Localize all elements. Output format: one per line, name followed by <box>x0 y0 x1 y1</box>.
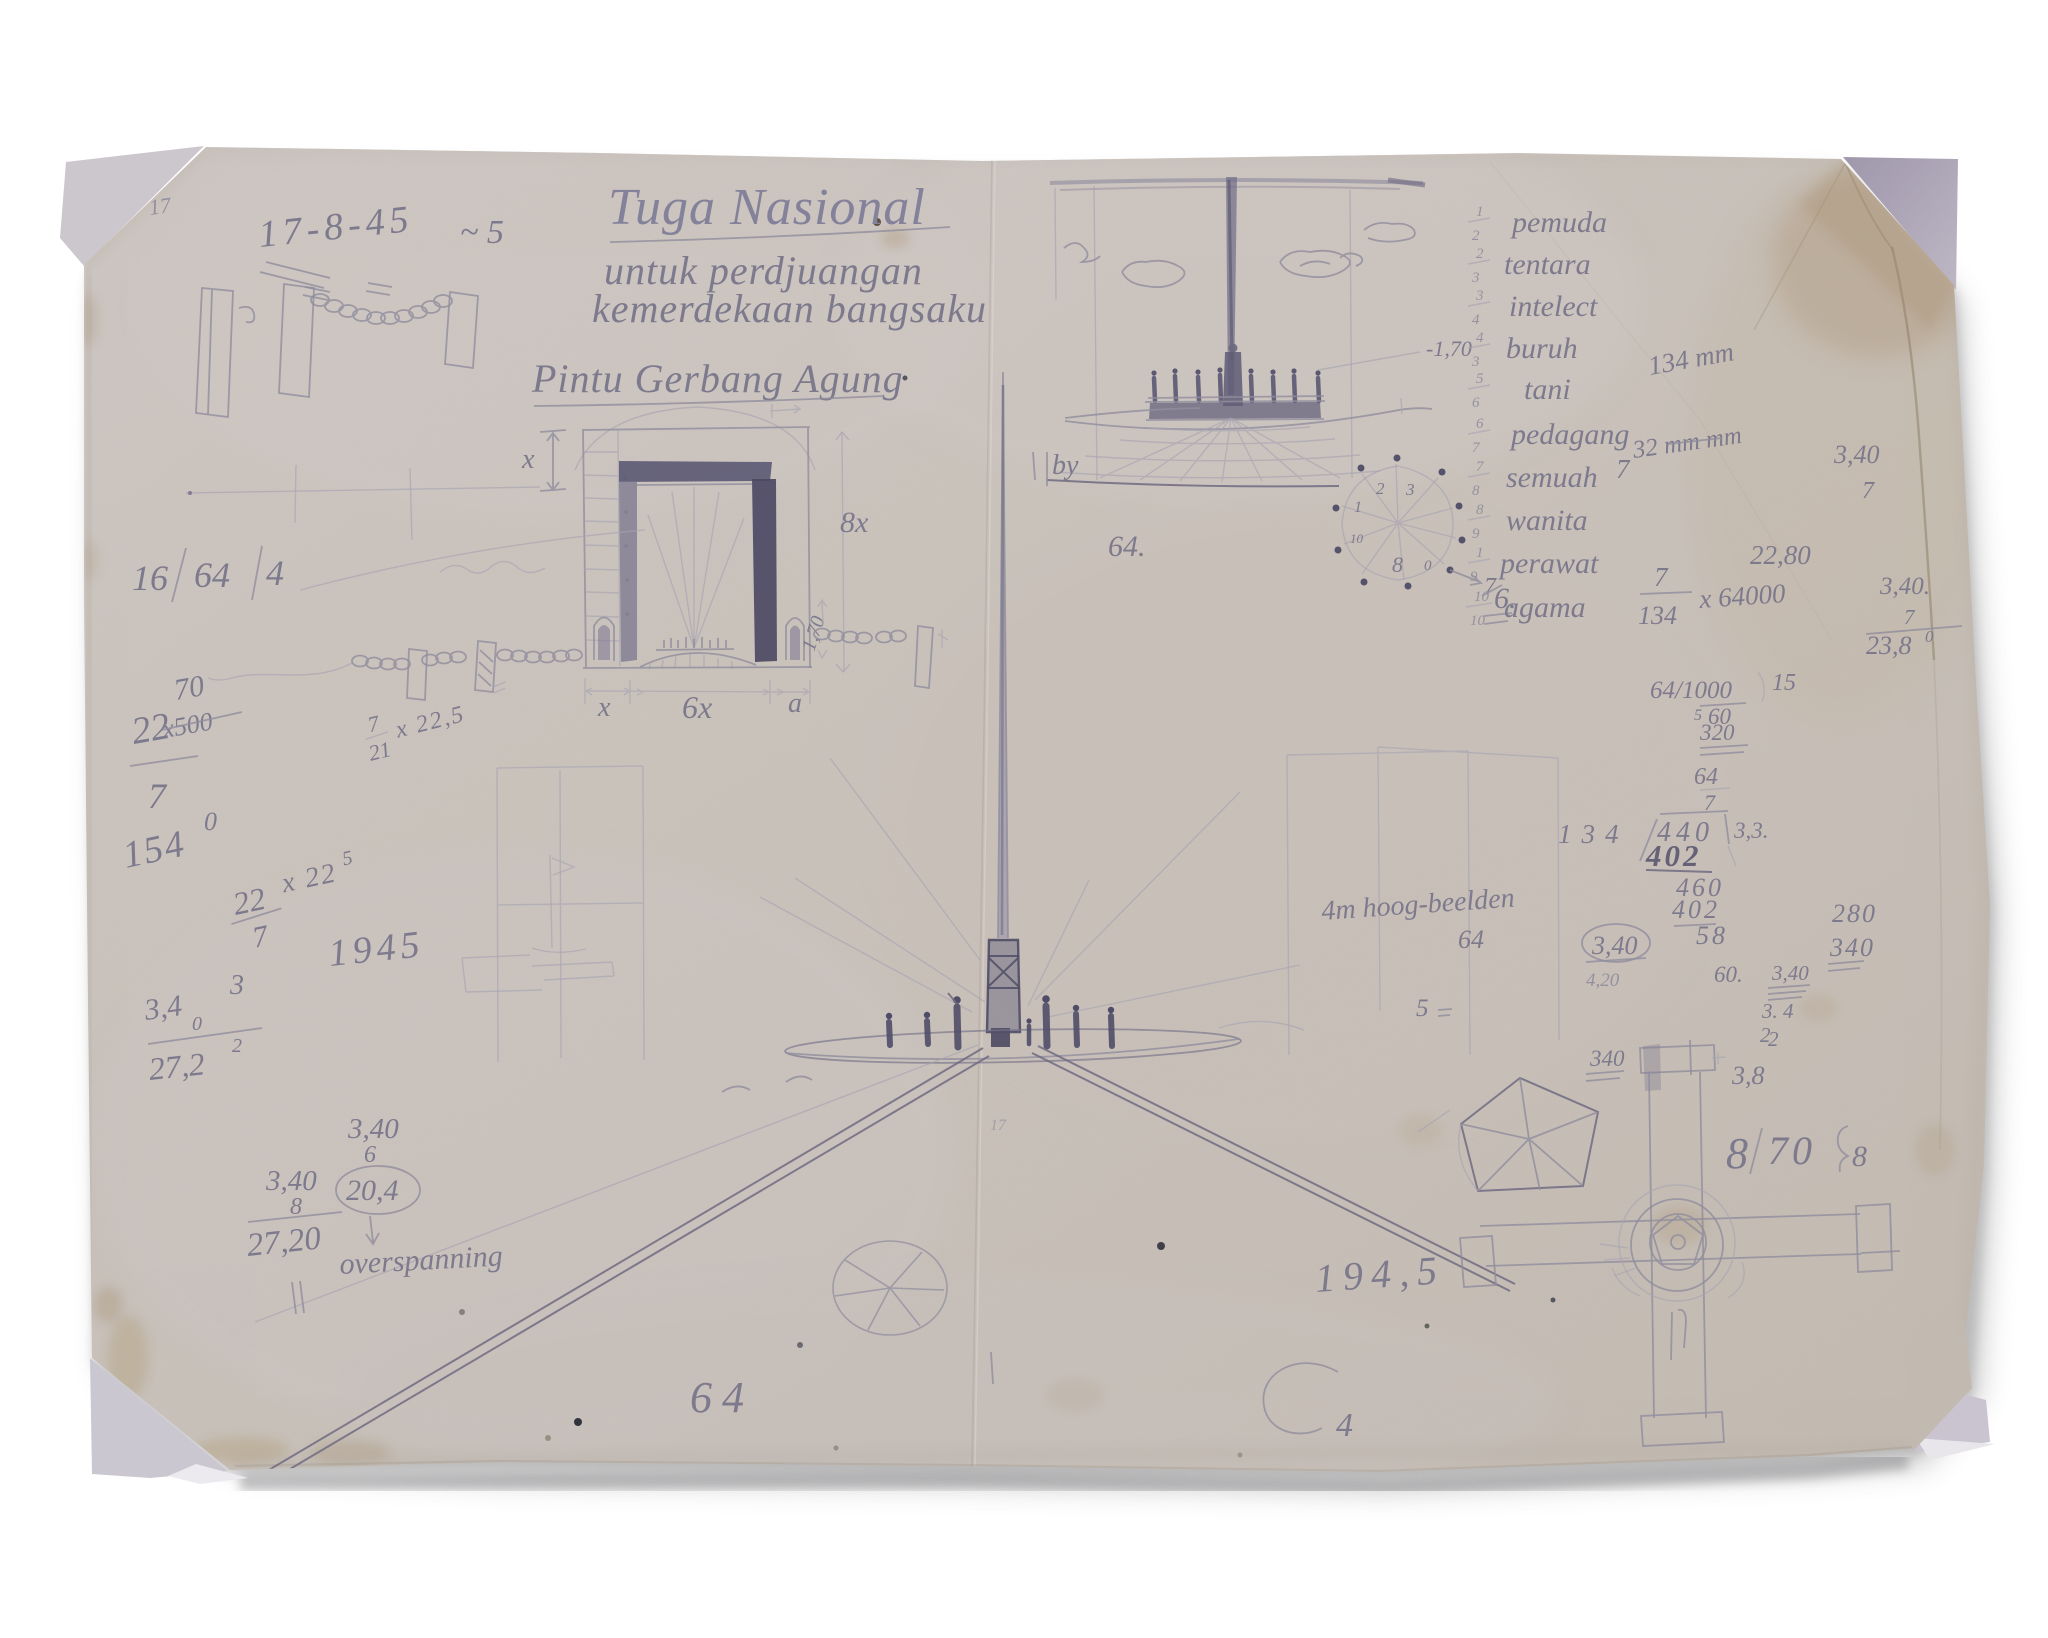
svg-text:4: 4 <box>1336 1407 1353 1444</box>
svg-text:Tuga Nasional: Tuga Nasional <box>608 179 926 236</box>
svg-text:70: 70 <box>171 669 206 707</box>
svg-text:64: 64 <box>1694 764 1718 790</box>
svg-text:20,4: 20,4 <box>346 1174 399 1207</box>
svg-text:3,40: 3,40 <box>1771 961 1809 985</box>
svg-text:2: 2 <box>1476 246 1484 262</box>
svg-text:3,40.: 3,40. <box>1879 573 1930 600</box>
svg-text:4: 4 <box>266 553 284 593</box>
svg-text:0: 0 <box>192 1013 202 1035</box>
svg-text:64: 64 <box>194 555 230 595</box>
svg-text:intelect: intelect <box>1509 290 1598 323</box>
svg-text:134: 134 <box>1638 601 1677 630</box>
svg-text:0: 0 <box>1925 627 1934 646</box>
svg-text:17: 17 <box>990 1117 1007 1134</box>
svg-text:10: 10 <box>1350 531 1364 546</box>
svg-text:8: 8 <box>1852 1140 1867 1173</box>
svg-text:by: by <box>1052 450 1079 481</box>
svg-text:semuah: semuah <box>1506 461 1598 494</box>
svg-text:kemerdekaan bangsaku: kemerdekaan bangsaku <box>592 286 987 331</box>
svg-text:64: 64 <box>690 1373 754 1422</box>
svg-text:5: 5 <box>1416 995 1429 1022</box>
svg-text:2: 2 <box>1472 228 1480 244</box>
svg-text:0: 0 <box>1424 558 1432 574</box>
svg-text:a: a <box>788 688 802 719</box>
svg-text:3: 3 <box>1471 270 1480 286</box>
svg-text:buruh: buruh <box>1506 332 1578 365</box>
svg-text:9: 9 <box>1472 526 1480 542</box>
svg-text:15: 15 <box>1772 670 1796 696</box>
svg-text:23,8: 23,8 <box>1866 631 1912 660</box>
svg-text:~ 5: ~ 5 <box>460 214 504 251</box>
svg-text:5: 5 <box>1476 371 1484 387</box>
svg-text:6: 6 <box>1472 395 1480 411</box>
svg-text:10: 10 <box>1470 613 1486 629</box>
svg-text:2: 2 <box>1376 479 1385 498</box>
svg-text:8: 8 <box>1472 483 1480 499</box>
svg-text:3: 3 <box>1471 354 1480 370</box>
svg-text:0: 0 <box>204 807 217 836</box>
svg-text:8: 8 <box>1476 502 1484 518</box>
svg-text:64.: 64. <box>1108 530 1146 563</box>
svg-text:16: 16 <box>132 558 168 598</box>
svg-text:pemuda: pemuda <box>1510 206 1607 239</box>
svg-text:3,8: 3,8 <box>1731 1061 1765 1090</box>
svg-text:3,40: 3,40 <box>265 1165 317 1197</box>
svg-text:3,40: 3,40 <box>347 1113 399 1145</box>
svg-text:wanita: wanita <box>1506 504 1588 537</box>
svg-text:320: 320 <box>1699 720 1735 745</box>
svg-text:7: 7 <box>1904 605 1916 629</box>
svg-text:9: 9 <box>1470 569 1478 585</box>
svg-text:3. 4: 3. 4 <box>1761 999 1794 1023</box>
svg-text:194,5: 194,5 <box>1313 1247 1446 1301</box>
svg-text:perawat: perawat <box>1498 547 1599 580</box>
svg-text:27,2: 27,2 <box>147 1045 206 1087</box>
svg-text:8: 8 <box>1392 552 1403 577</box>
svg-text:6: 6 <box>1476 416 1484 432</box>
svg-text:340: 340 <box>1589 1046 1625 1071</box>
svg-text:7: 7 <box>1616 454 1631 484</box>
svg-text:3: 3 <box>1475 288 1484 304</box>
svg-text:-1,70: -1,70 <box>1426 336 1472 361</box>
svg-text:4: 4 <box>1476 330 1484 346</box>
svg-text:3: 3 <box>229 970 244 1001</box>
svg-text:7: 7 <box>148 776 168 816</box>
svg-text:1: 1 <box>1476 545 1484 561</box>
svg-text:134: 134 <box>1558 819 1629 849</box>
svg-text:280: 280 <box>1832 899 1877 928</box>
svg-text:agama: agama <box>1504 591 1586 624</box>
svg-text:3: 3 <box>1405 480 1415 499</box>
svg-text:6: 6 <box>364 1142 376 1168</box>
svg-text:340: 340 <box>1829 933 1875 962</box>
svg-text:64/1000: 64/1000 <box>1650 677 1732 704</box>
svg-text:7: 7 <box>1654 562 1669 592</box>
svg-text:10: 10 <box>1474 589 1490 605</box>
svg-text:8: 8 <box>1726 1129 1748 1178</box>
svg-text:pedagang: pedagang <box>1509 418 1629 451</box>
svg-text:3,3.: 3,3. <box>1733 818 1769 843</box>
svg-text:x: x <box>597 692 611 723</box>
svg-text:6x: 6x <box>682 689 712 725</box>
svg-text:60.: 60. <box>1714 962 1743 987</box>
svg-text:22,80: 22,80 <box>1750 540 1811 570</box>
svg-text:Pintu Gerbang Agung: Pintu Gerbang Agung <box>531 356 904 401</box>
svg-text:7: 7 <box>1862 478 1875 504</box>
svg-text:402: 402 <box>1672 895 1720 924</box>
svg-text:x: x <box>521 444 535 475</box>
svg-text:4: 4 <box>1472 312 1480 328</box>
svg-text:tentara: tentara <box>1504 248 1591 281</box>
svg-text:1: 1 <box>1476 204 1484 220</box>
svg-text:2: 2 <box>232 1035 242 1057</box>
svg-text:70: 70 <box>1768 1128 1816 1173</box>
svg-text:64: 64 <box>1458 925 1484 954</box>
svg-text:3,4: 3,4 <box>141 989 184 1027</box>
svg-text:2: 2 <box>1760 1023 1771 1047</box>
svg-text:4,20: 4,20 <box>1586 970 1620 991</box>
svg-text:1: 1 <box>1354 499 1362 516</box>
svg-text:tani: tani <box>1524 373 1571 406</box>
svg-text:8x: 8x <box>840 506 869 539</box>
svg-text:x 64000: x 64000 <box>1697 578 1787 614</box>
svg-text:58: 58 <box>1696 921 1728 950</box>
svg-text:3,40: 3,40 <box>1591 931 1638 960</box>
svg-text:3,40: 3,40 <box>1833 440 1880 469</box>
svg-text:402: 402 <box>1645 838 1702 873</box>
